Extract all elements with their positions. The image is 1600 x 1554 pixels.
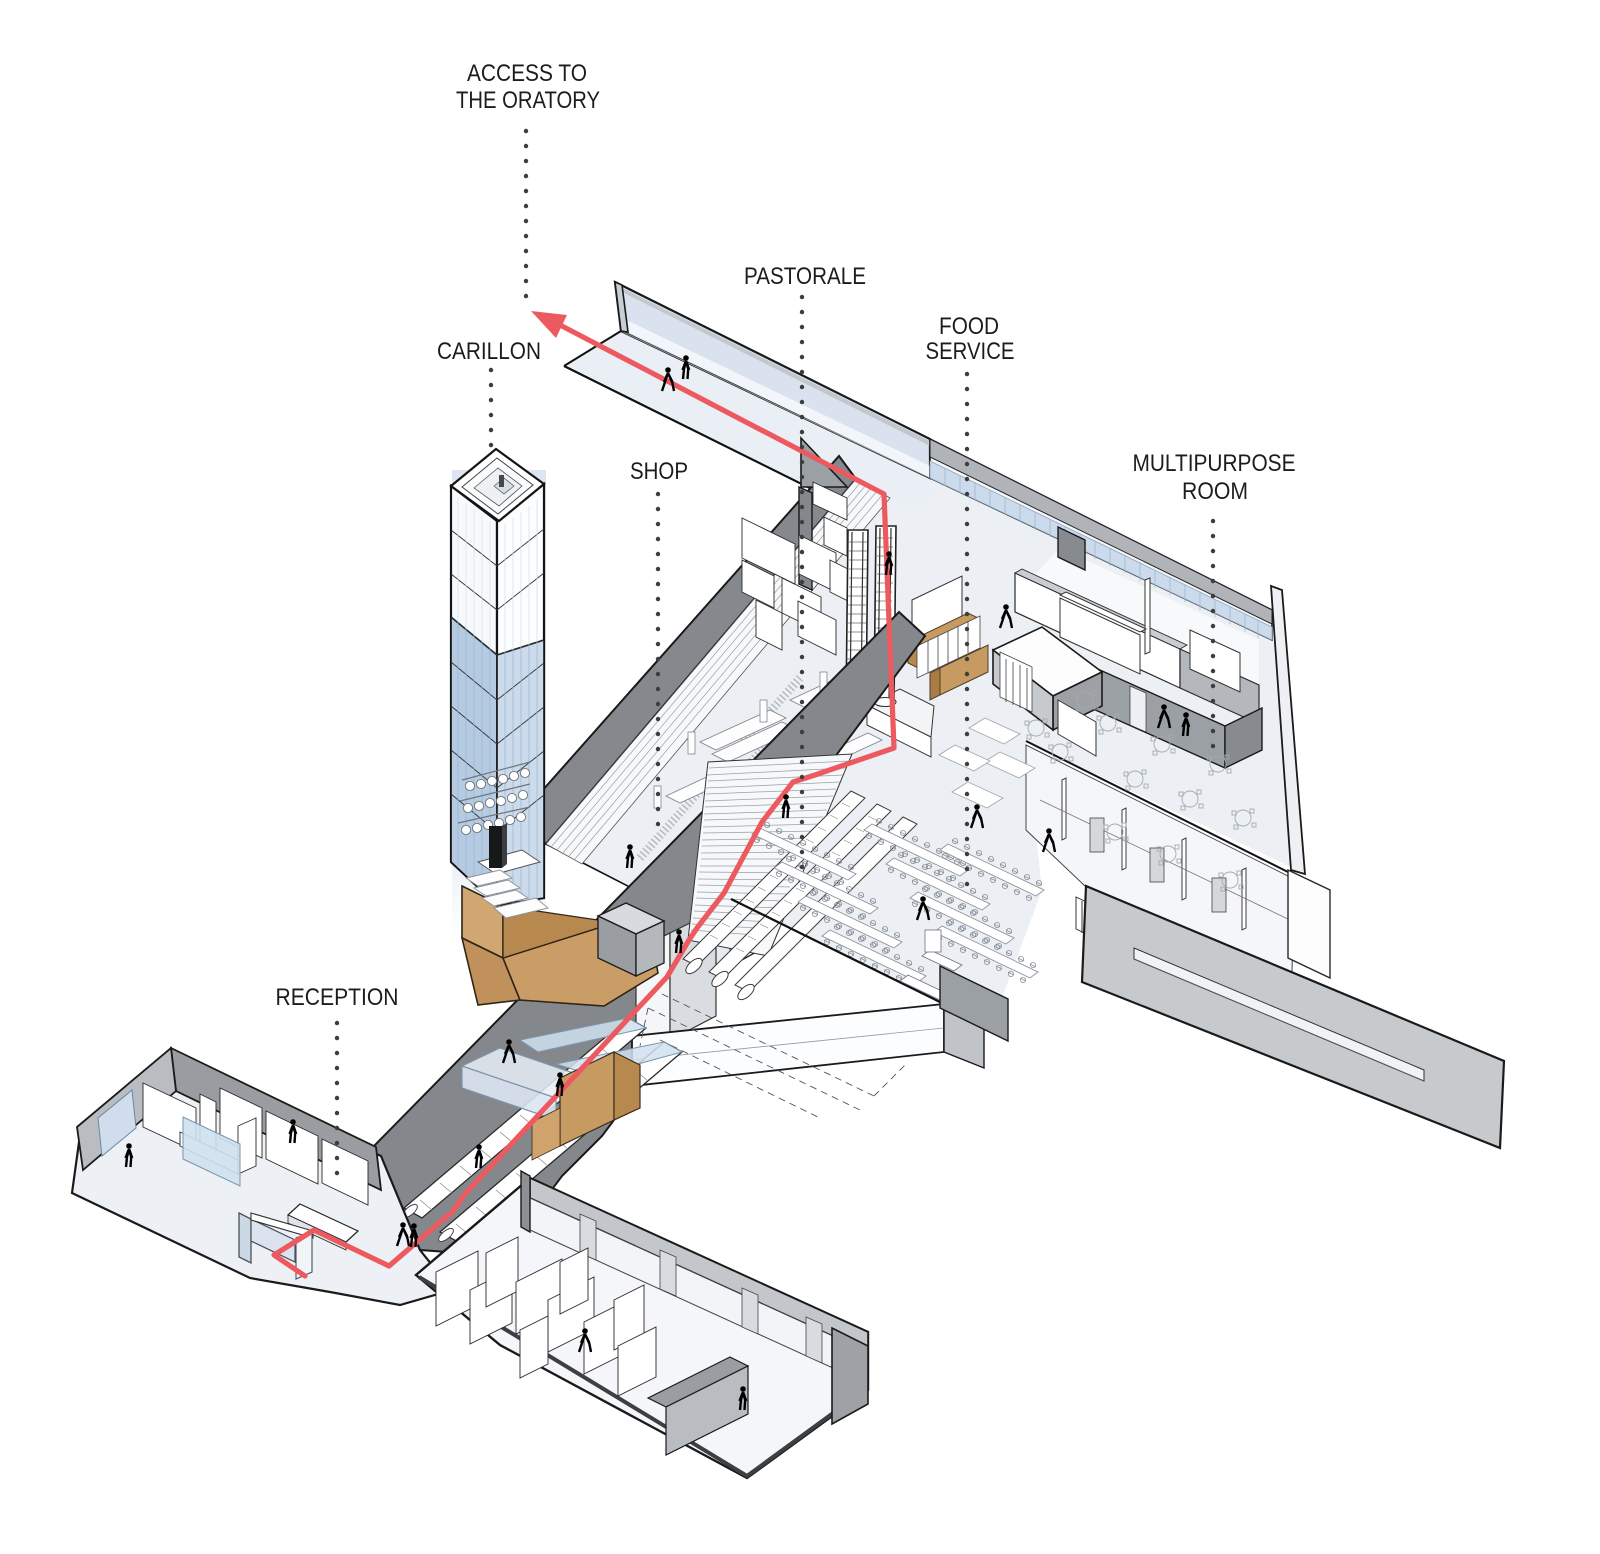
svg-text:PASTORALE: PASTORALE: [744, 263, 866, 290]
svg-text:ROOM: ROOM: [1182, 478, 1248, 505]
svg-text:THE ORATORY: THE ORATORY: [456, 87, 600, 114]
svg-text:FOOD: FOOD: [939, 313, 999, 340]
svg-text:ACCESS TO: ACCESS TO: [467, 60, 587, 87]
svg-text:CARILLON: CARILLON: [437, 338, 541, 365]
svg-text:SHOP: SHOP: [630, 458, 688, 485]
svg-text:RECEPTION: RECEPTION: [276, 984, 399, 1011]
svg-text:MULTIPURPOSE: MULTIPURPOSE: [1133, 450, 1296, 477]
svg-text:SERVICE: SERVICE: [926, 338, 1015, 365]
